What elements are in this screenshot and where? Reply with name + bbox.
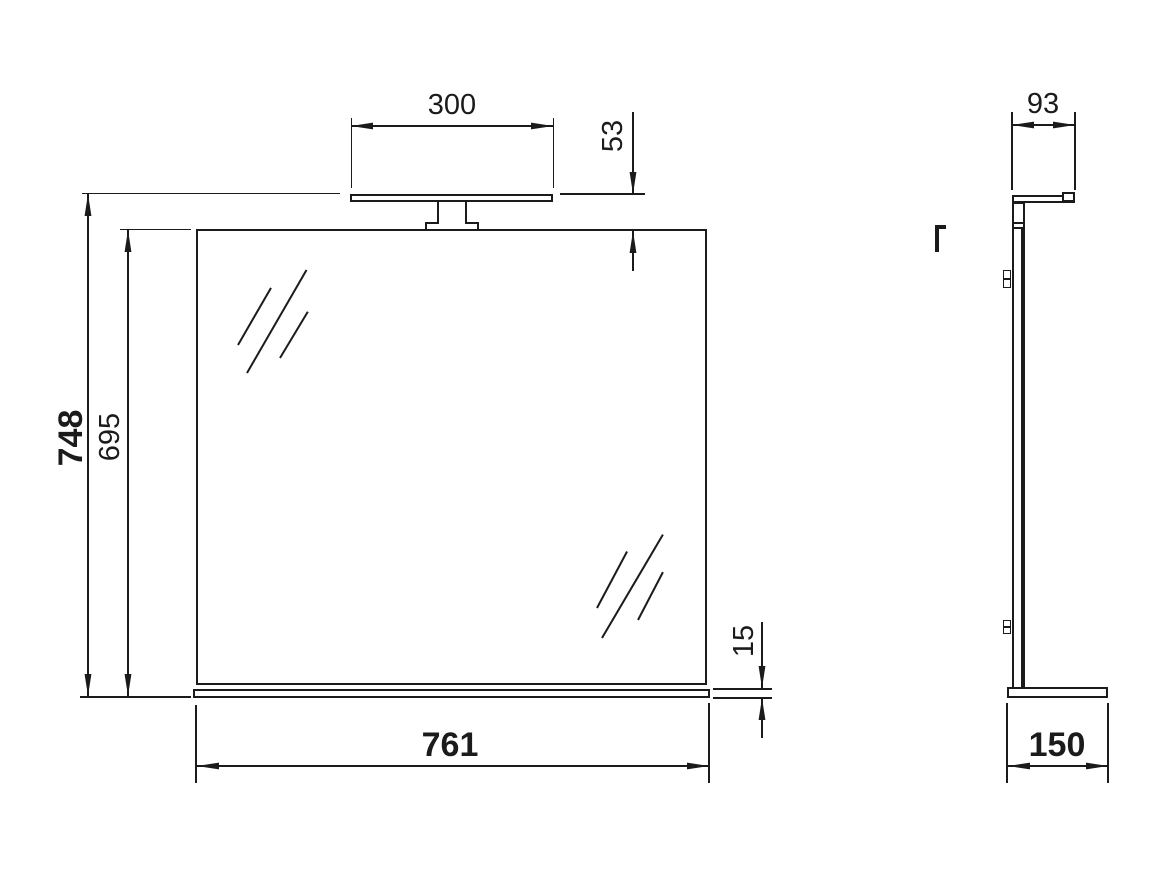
technical-drawing-canvas: 300 53 748 695: [0, 0, 1173, 880]
mirror-outline: [196, 229, 707, 685]
lamp-foot-right-side: [477, 222, 479, 230]
dimension-line: [351, 125, 553, 127]
extension-line: [195, 705, 197, 783]
arrow-right-icon: [531, 122, 553, 131]
lamp-foot-left-ledge: [425, 222, 439, 224]
extension-line: [560, 193, 645, 195]
lamp-bracket-side: [1012, 202, 1025, 229]
arrow-up-icon: [84, 194, 93, 216]
arrow-left-icon: [197, 762, 219, 771]
dim-label-base-depth: 150: [957, 729, 1157, 761]
dim-label-lamp-width: 300: [402, 92, 502, 118]
extension-line: [708, 703, 710, 783]
extension-line: [80, 696, 191, 698]
base-shelf-side: [1007, 687, 1108, 698]
dimension-line: [196, 765, 709, 767]
dimension-line: [127, 230, 129, 696]
bracket-mark-vertical: [935, 225, 939, 252]
extension-line: [351, 118, 353, 188]
dim-label-overall-width: 761: [390, 729, 510, 761]
arrow-down-icon: [124, 674, 133, 696]
dimension-line: [632, 231, 634, 271]
lamp-head-side: [1062, 192, 1075, 202]
arrow-up-icon: [124, 230, 133, 252]
wall-clip-top-notch: [1003, 278, 1011, 280]
arrow-down-icon: [84, 674, 93, 696]
dim-label-mirror-height: 695: [96, 397, 124, 477]
arrow-down-icon: [629, 172, 638, 194]
dim-label-overall-height: 748: [56, 398, 86, 478]
dim-label-lamp-gap: 53: [599, 96, 627, 176]
lamp-bar: [350, 194, 553, 202]
arrow-left-icon: [1012, 121, 1034, 130]
arrow-right-icon: [1086, 762, 1108, 771]
extension-line: [120, 229, 191, 231]
extension-line: [713, 688, 772, 690]
arrow-down-icon: [758, 666, 767, 688]
arrow-left-icon: [1008, 762, 1030, 771]
extension-line: [713, 697, 772, 699]
arrow-right-icon: [1053, 121, 1075, 130]
lamp-bracket-divider: [1012, 222, 1025, 224]
dim-label-lamp-depth: 93: [993, 91, 1093, 117]
lamp-foot-left-side: [425, 222, 427, 230]
arrow-left-icon: [351, 122, 373, 131]
mirror-profile-front-line: [1021, 229, 1025, 687]
bracket-mark-horizontal: [935, 225, 946, 229]
extension-line: [82, 193, 340, 195]
mirror-profile-back-line: [1012, 229, 1014, 687]
lamp-stem-left: [437, 202, 439, 223]
extension-line: [553, 118, 555, 188]
dimension-line: [761, 698, 763, 738]
lamp-stem-right: [465, 202, 467, 223]
dim-label-shelf-thickness: 15: [730, 601, 758, 681]
wall-clip-bottom-notch: [1003, 626, 1011, 628]
arrow-right-icon: [687, 762, 709, 771]
mirror-shelf-front: [193, 689, 710, 698]
